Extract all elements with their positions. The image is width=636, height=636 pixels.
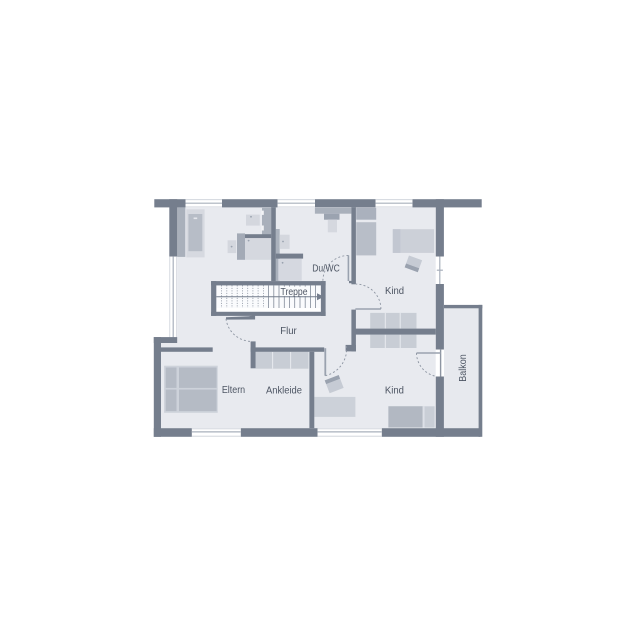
svg-text:Balkon: Balkon [458, 354, 469, 382]
svg-text:Kind: Kind [385, 286, 404, 297]
svg-text:Kind: Kind [385, 385, 404, 396]
svg-text:Flur: Flur [280, 326, 297, 337]
svg-text:Treppe: Treppe [281, 287, 308, 298]
svg-text:Eltern: Eltern [222, 385, 245, 396]
svg-text:Du/WC: Du/WC [312, 264, 340, 275]
svg-text:Ankleide: Ankleide [266, 385, 302, 396]
